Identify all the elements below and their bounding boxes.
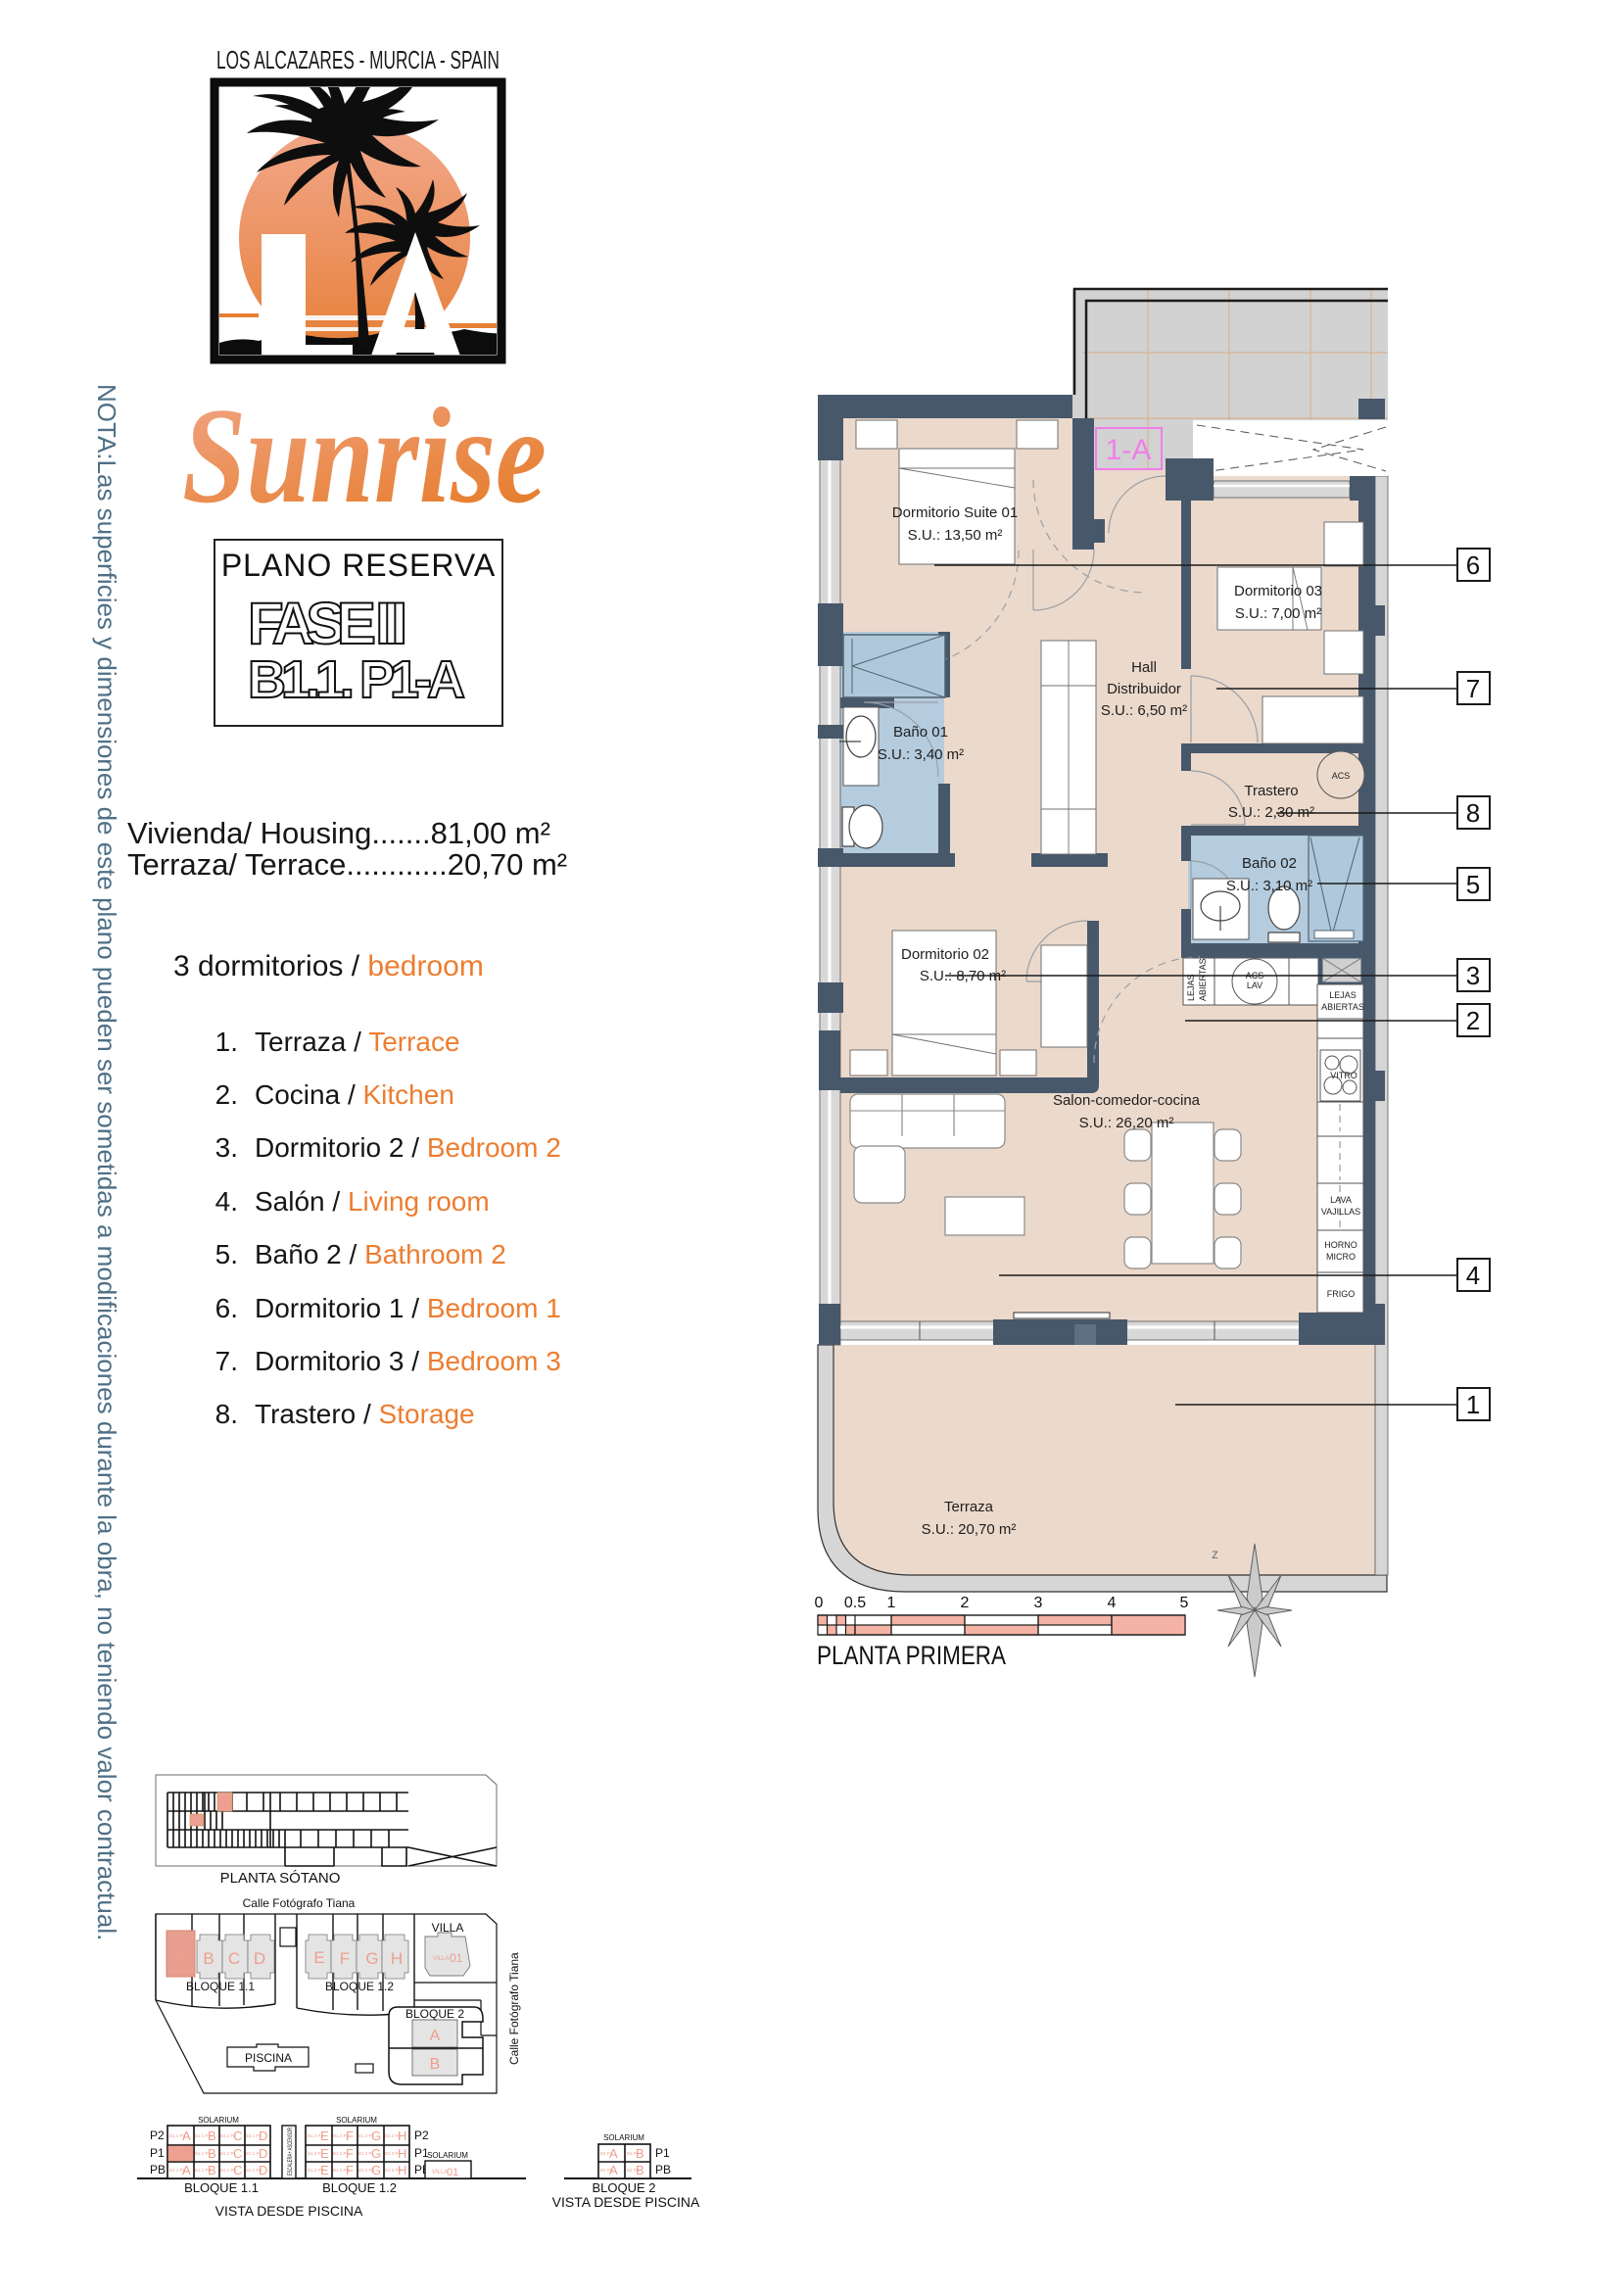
svg-text:5.: 5. — [215, 1239, 238, 1269]
svg-text:Cocina / Kitchen: Cocina / Kitchen — [255, 1079, 454, 1110]
svg-text:B1.2 P2: B1.2 P2 — [358, 2133, 375, 2138]
svg-text:B1.1 P2: B1.1 P2 — [246, 2133, 262, 2138]
svg-text:FRIGO: FRIGO — [1327, 1289, 1356, 1299]
svg-text:VITRO: VITRO — [1330, 1071, 1357, 1080]
svg-text:PLANTA SÓTANO: PLANTA SÓTANO — [220, 1870, 341, 1887]
svg-text:Trastero / Storage: Trastero / Storage — [255, 1399, 475, 1429]
svg-text:B2 P1: B2 P1 — [600, 2151, 613, 2156]
svg-text:Salon-comedor-cocina: Salon-comedor-cocina — [1053, 1092, 1201, 1109]
svg-text:PB: PB — [150, 2163, 166, 2176]
svg-text:E: E — [313, 1948, 324, 1967]
svg-text:B1.2 PB: B1.2 PB — [385, 2168, 402, 2173]
svg-text:Distribuidor: Distribuidor — [1107, 681, 1181, 697]
svg-text:ESCALERA+ ASCENSOR: ESCALERA+ ASCENSOR — [288, 2128, 294, 2176]
svg-text:VISTA DESDE PISCINA: VISTA DESDE PISCINA — [215, 2203, 363, 2219]
svg-text:B1.2 P2: B1.2 P2 — [385, 2133, 402, 2138]
svg-text:3.: 3. — [215, 1132, 238, 1163]
svg-text:BLOQUE 2: BLOQUE 2 — [405, 2007, 464, 2021]
svg-text:2: 2 — [961, 1595, 970, 1611]
svg-text:Calle Fotógrafo Tiana: Calle Fotógrafo Tiana — [243, 1896, 356, 1910]
svg-text:3 dormitorios / bedroom: 3 dormitorios / bedroom — [173, 950, 484, 982]
svg-text:ABIERTAS: ABIERTAS — [1321, 1002, 1364, 1012]
svg-text:S.U.: 3,40 m²: S.U.: 3,40 m² — [878, 746, 964, 763]
svg-text:z: z — [1212, 1546, 1218, 1561]
svg-text:F: F — [340, 1949, 350, 1968]
svg-text:Sunrise: Sunrise — [182, 380, 547, 532]
svg-text:VISTA DESDE PISCINA: VISTA DESDE PISCINA — [552, 2194, 700, 2210]
svg-text:LEJAS: LEJAS — [1329, 990, 1357, 1000]
svg-text:VILLA: VILLA — [433, 1956, 449, 1962]
svg-text:Dormitorio 2 / Bedroom 2: Dormitorio 2 / Bedroom 2 — [255, 1132, 561, 1163]
svg-text:B2 PB: B2 PB — [627, 2168, 640, 2173]
svg-text:B1.2 PB: B1.2 PB — [358, 2168, 375, 2173]
svg-text:ACS: ACS — [1332, 771, 1351, 781]
svg-text:LEJAS: LEJAS — [1186, 974, 1196, 1001]
svg-text:4.: 4. — [215, 1186, 238, 1217]
svg-text:Calle Fotógrafo Tiana: Calle Fotógrafo Tiana — [507, 1952, 521, 2065]
svg-text:B1.1 PB: B1.1 PB — [195, 2168, 212, 2173]
svg-text:Baño 2 / Bathroom 2: Baño 2 / Bathroom 2 — [255, 1239, 506, 1269]
svg-text:1-A: 1-A — [1106, 434, 1152, 466]
svg-text:BLOQUE 1.1: BLOQUE 1.1 — [184, 2180, 259, 2195]
svg-text:A: A — [430, 2028, 441, 2044]
svg-text:Baño 01: Baño 01 — [893, 724, 948, 741]
svg-text:BLOQUE 1.2: BLOQUE 1.2 — [325, 1980, 394, 1993]
svg-text:Terraza: Terraza — [944, 1499, 994, 1515]
svg-text:S.U.: 6,50 m²: S.U.: 6,50 m² — [1101, 702, 1187, 719]
svg-text:LOS ALCAZARES - MURCIA - SPAIN: LOS ALCAZARES - MURCIA - SPAIN — [216, 45, 500, 74]
svg-text:SOLARIUM: SOLARIUM — [603, 2133, 644, 2142]
svg-text:C: C — [228, 1949, 240, 1968]
svg-text:B1.1 P2: B1.1 P2 — [220, 2133, 237, 2138]
svg-text:H: H — [391, 1949, 403, 1968]
svg-text:S.U.: 20,70 m²: S.U.: 20,70 m² — [922, 1521, 1017, 1538]
svg-text:0: 0 — [815, 1595, 824, 1611]
svg-text:ABIERTAS: ABIERTAS — [1198, 958, 1208, 1001]
svg-text:Dormitorio 1 / Bedroom 1: Dormitorio 1 / Bedroom 1 — [255, 1293, 561, 1323]
svg-text:S.U.: 13,50 m²: S.U.: 13,50 m² — [908, 527, 1003, 544]
svg-text:B1.1 P1: B1.1 P1 — [220, 2151, 237, 2156]
svg-text:SOLARIUM: SOLARIUM — [336, 2116, 377, 2125]
svg-text:7.: 7. — [215, 1346, 238, 1376]
svg-text:B1.1 PB: B1.1 PB — [220, 2168, 237, 2173]
svg-text:Dormitorio Suite 01: Dormitorio Suite 01 — [892, 504, 1018, 521]
svg-text:B1.1 P1: B1.1 P1 — [169, 2151, 186, 2156]
svg-text:SOLARIUM: SOLARIUM — [198, 2116, 239, 2125]
svg-text:B1.2 P2: B1.2 P2 — [333, 2133, 350, 2138]
svg-text:FASE III: FASE III — [248, 591, 409, 656]
svg-text:5: 5 — [1180, 1595, 1189, 1611]
svg-text:4: 4 — [1466, 1261, 1480, 1290]
svg-text:01: 01 — [447, 2167, 458, 2178]
svg-text:B1.1. P1-A: B1.1. P1-A — [248, 650, 465, 709]
svg-text:VILLA: VILLA — [432, 2170, 448, 2176]
svg-text:PLANTA PRIMERA: PLANTA PRIMERA — [817, 1641, 1006, 1670]
svg-text:8: 8 — [1466, 798, 1480, 828]
svg-text:Hall: Hall — [1131, 659, 1157, 676]
svg-text:B1.1 PB: B1.1 PB — [246, 2168, 262, 2173]
svg-text:BLOQUE 1.1: BLOQUE 1.1 — [186, 1980, 255, 1993]
svg-text:S.U.: 7,00 m²: S.U.: 7,00 m² — [1235, 605, 1321, 622]
svg-text:01: 01 — [450, 1951, 463, 1965]
svg-text:4: 4 — [1108, 1595, 1117, 1611]
svg-text:B1.2 P1: B1.2 P1 — [385, 2151, 402, 2156]
svg-text:VAJILLAS: VAJILLAS — [1321, 1207, 1360, 1217]
svg-text:1: 1 — [887, 1595, 896, 1611]
svg-text:5: 5 — [1466, 870, 1480, 899]
svg-text:B1.2 P2: B1.2 P2 — [308, 2133, 324, 2138]
svg-text:B1.2 P1: B1.2 P1 — [308, 2151, 324, 2156]
svg-text:Dormitorio 3 / Bedroom 3: Dormitorio 3 / Bedroom 3 — [255, 1346, 561, 1376]
svg-text:SOLARIUM: SOLARIUM — [427, 2151, 468, 2160]
svg-text:P1: P1 — [150, 2146, 165, 2160]
svg-text:Trastero: Trastero — [1244, 783, 1298, 799]
svg-text:LAVA: LAVA — [1330, 1195, 1352, 1205]
svg-text:8.: 8. — [215, 1399, 238, 1429]
svg-text:Baño 02: Baño 02 — [1242, 855, 1297, 872]
svg-text:PB: PB — [655, 2163, 671, 2176]
svg-text:B1.1 P2: B1.1 P2 — [195, 2133, 212, 2138]
svg-text:PLANO RESERVA: PLANO RESERVA — [221, 548, 496, 583]
svg-text:P1: P1 — [655, 2146, 670, 2160]
svg-text:3: 3 — [1034, 1595, 1043, 1611]
svg-text:B: B — [203, 1949, 214, 1968]
svg-text:3: 3 — [1466, 961, 1480, 990]
svg-text:Dormitorio 02: Dormitorio 02 — [901, 946, 989, 963]
svg-text:BLOQUE 1.2: BLOQUE 1.2 — [322, 2180, 397, 2195]
svg-text:LAV: LAV — [1247, 981, 1262, 990]
svg-text:6.: 6. — [215, 1293, 238, 1323]
svg-text:B1.1 P1: B1.1 P1 — [246, 2151, 262, 2156]
svg-text:B2 PB: B2 PB — [600, 2168, 613, 2173]
svg-text:Vivienda/ Housing.......81,00: Vivienda/ Housing.......81,00 m² — [127, 816, 550, 850]
svg-text:Terraza/ Terrace............20: Terraza/ Terrace............20,70 m² — [127, 847, 567, 882]
svg-text:A: A — [175, 1948, 187, 1967]
svg-text:MICRO: MICRO — [1326, 1252, 1356, 1262]
svg-text:HORNO: HORNO — [1324, 1240, 1357, 1250]
svg-text:B1.1 P1: B1.1 P1 — [195, 2151, 212, 2156]
svg-text:G: G — [365, 1949, 378, 1968]
svg-text:Terraza / Terrace: Terraza / Terrace — [255, 1027, 460, 1057]
svg-text:0.5: 0.5 — [844, 1595, 866, 1611]
svg-text:B1.1 PB: B1.1 PB — [169, 2168, 186, 2173]
svg-text:B1.2 PB: B1.2 PB — [308, 2168, 324, 2173]
svg-text:B1.1 P2: B1.1 P2 — [169, 2133, 186, 2138]
svg-text:Salón / Living room: Salón / Living room — [255, 1186, 490, 1217]
svg-text:B1.2 P1: B1.2 P1 — [333, 2151, 350, 2156]
svg-text:1: 1 — [1466, 1390, 1480, 1419]
svg-text:PISCINA: PISCINA — [245, 2051, 292, 2065]
svg-text:B1.2 P1: B1.2 P1 — [358, 2151, 375, 2156]
svg-text:NOTA:Las superficies y dimensi: NOTA:Las superficies y dimensiones de es… — [92, 384, 121, 1940]
svg-text:7: 7 — [1466, 674, 1480, 703]
svg-text:B2 P1: B2 P1 — [627, 2151, 640, 2156]
svg-text:S.U.: 3,10 m²: S.U.: 3,10 m² — [1226, 878, 1312, 894]
svg-text:2.: 2. — [215, 1079, 238, 1110]
svg-text:B1.2 PB: B1.2 PB — [333, 2168, 350, 2173]
svg-text:P2: P2 — [150, 2129, 165, 2142]
svg-text:Dormitorio 03: Dormitorio 03 — [1234, 583, 1322, 599]
svg-text:2: 2 — [1466, 1006, 1480, 1035]
svg-text:1.: 1. — [215, 1027, 238, 1057]
svg-text:BLOQUE 2: BLOQUE 2 — [592, 2180, 655, 2195]
svg-text:6: 6 — [1466, 550, 1480, 580]
svg-text:B: B — [430, 2056, 441, 2073]
svg-text:D: D — [254, 1949, 265, 1968]
svg-text:S.U.: 26,20 m²: S.U.: 26,20 m² — [1079, 1115, 1174, 1131]
svg-text:P2: P2 — [414, 2129, 429, 2142]
